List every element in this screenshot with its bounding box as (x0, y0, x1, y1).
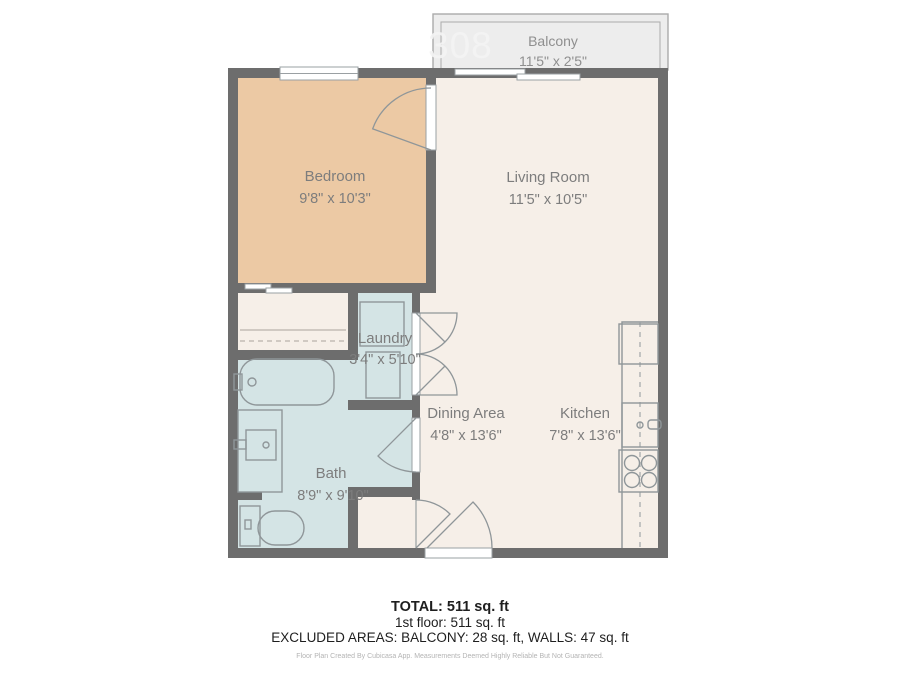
bedroom-door-panel (426, 85, 436, 150)
balcony-slider-panel-right (517, 74, 580, 80)
wall-left (228, 68, 238, 558)
balcony-name: Balcony (528, 33, 578, 49)
balcony-dims: 11'5" x 2'5" (519, 53, 587, 69)
total-area-text: TOTAL: 511 sq. ft (0, 599, 900, 615)
wall-laundry-right-top (412, 283, 420, 313)
entry-threshold (425, 548, 492, 558)
laundry-dims: 3'4" x 5'10" (349, 352, 420, 368)
wall-closet-right (348, 283, 358, 360)
excluded-areas-text: EXCLUDED AREAS: BALCONY: 28 sq. ft, WALL… (0, 630, 900, 645)
kitchen-dims: 7'8" x 13'6" (549, 428, 620, 444)
first-floor-area-text: 1st floor: 511 sq. ft (0, 615, 900, 630)
dining-area-name: Dining Area (427, 405, 505, 422)
kitchen-name: Kitchen (560, 405, 610, 422)
bedroom-dims: 9'8" x 10'3" (299, 191, 370, 207)
floor-entry-closet (358, 497, 412, 548)
wall-right (658, 68, 668, 558)
laundry-name: Laundry (358, 330, 413, 347)
floor-plan-drawing: 308 (0, 0, 900, 675)
bedroom-name: Bedroom (305, 168, 366, 185)
balcony-slider-panel-left (455, 69, 525, 75)
bath-dims: 8'9" x 9'10" (297, 488, 368, 504)
bath-door-panel (412, 418, 420, 472)
wall-toilet-stub (238, 492, 262, 500)
dining-area-dims: 4'8" x 13'6" (430, 428, 501, 444)
closet-slider-panel-right (266, 288, 292, 293)
bath-name: Bath (316, 465, 347, 482)
wall-laundry-bottom (348, 400, 420, 410)
living-room-name: Living Room (506, 169, 589, 186)
floor-plan-page: 308 (0, 0, 900, 675)
living-room-dims: 11'5" x 10'5" (509, 192, 587, 208)
unit-number-watermark: 308 (428, 25, 493, 66)
disclaimer-text: Floor Plan Created By Cubicasa App. Meas… (0, 653, 900, 660)
